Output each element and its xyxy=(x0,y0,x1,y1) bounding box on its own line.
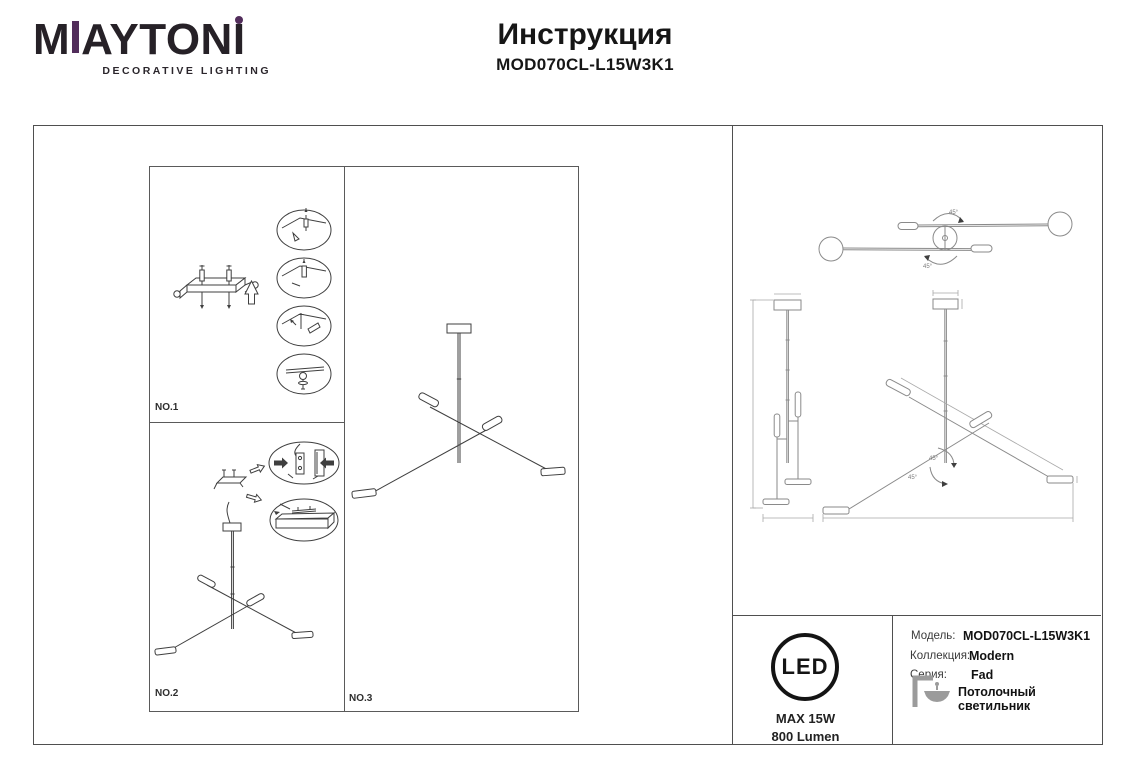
ceiling-light-icon xyxy=(911,674,955,708)
assembled-fixture-drawing xyxy=(352,324,566,498)
collection-label: Коллекция: xyxy=(910,650,970,662)
step3-label: NO.3 xyxy=(349,693,372,704)
series-value: Fad xyxy=(971,668,993,682)
step1-detail-callout-2 xyxy=(277,258,331,298)
callout-arrow-down xyxy=(246,492,263,504)
step2-detail-callout-1 xyxy=(269,442,339,484)
maytoni-logo: M AYTON I DECORATIVE LIGHTING xyxy=(33,14,273,77)
step1-label: NO.1 xyxy=(155,402,178,413)
front-view-drawing: 45° 45° xyxy=(823,290,1077,522)
bracket-mini-drawing xyxy=(214,470,246,489)
step3-assembled-drawing xyxy=(344,167,578,711)
side-view-drawing xyxy=(750,294,813,522)
brand-letter-i: I xyxy=(233,18,246,62)
assembly-steps-grid: NO.1 xyxy=(149,166,579,712)
step2-hanging-drawing xyxy=(150,422,344,711)
led-spec-cell: LED MAX 15W 800 Lumen xyxy=(733,616,892,745)
assembly-step-2: NO.2 xyxy=(150,422,344,711)
document-header: Инструкция MOD070CL-L15W3K1 xyxy=(415,18,755,75)
collection-value: Modern xyxy=(969,649,1014,663)
assembly-step-3: NO.3 xyxy=(344,167,578,711)
step2-detail-callout-2 xyxy=(270,499,338,541)
rotation-angle-top2: 45° xyxy=(923,264,933,270)
product-type-value: Потолочный светильник xyxy=(958,685,1102,713)
model-value: MOD070CL-L15W3K1 xyxy=(963,629,1090,643)
rotation-angle-top: 45° xyxy=(949,210,959,216)
step1-detail-callout-3 xyxy=(277,306,331,346)
technical-panel: 45° 45° xyxy=(733,125,1103,745)
step1-detail-callout-1 xyxy=(277,208,331,250)
step1-mounting-drawing xyxy=(150,167,344,422)
max-power-value: MAX 15W xyxy=(733,711,878,726)
brand-wordmark: M AYTON I xyxy=(33,14,273,62)
top-view-drawing: 45° 45° xyxy=(819,210,1072,270)
step2-label: NO.2 xyxy=(155,688,178,699)
brand-accent-bar xyxy=(72,21,79,53)
model-label: Модель: xyxy=(911,630,955,642)
page-title: Инструкция xyxy=(415,18,755,52)
assembly-panel: NO.1 xyxy=(33,125,733,745)
luminous-flux-value: 800 Lumen xyxy=(733,729,878,744)
brand-tagline: DECORATIVE LIGHTING xyxy=(33,65,271,77)
led-badge-icon: LED xyxy=(771,633,839,701)
led-badge-text: LED xyxy=(782,654,829,680)
brand-i-dot xyxy=(235,16,243,24)
technical-drawings: 45° 45° xyxy=(733,126,1101,615)
assembly-step-1: NO.1 xyxy=(150,167,344,422)
model-number: MOD070CL-L15W3K1 xyxy=(415,55,755,75)
rotation-angle-front: 45° xyxy=(929,456,939,462)
callout-arrow-up xyxy=(249,462,266,475)
product-info-table: Модель: MOD070CL-L15W3K1 Коллекция: Mode… xyxy=(892,616,1102,745)
step1-detail-callout-4 xyxy=(277,354,331,394)
brand-letter-m: M xyxy=(33,18,70,62)
instruction-sheet: M AYTON I DECORATIVE LIGHTING Инструкция… xyxy=(0,0,1138,779)
rotation-angle-front2: 45° xyxy=(908,475,918,481)
brand-letters-mid: AYTON xyxy=(81,18,233,62)
mounting-bracket-drawing xyxy=(174,265,258,309)
